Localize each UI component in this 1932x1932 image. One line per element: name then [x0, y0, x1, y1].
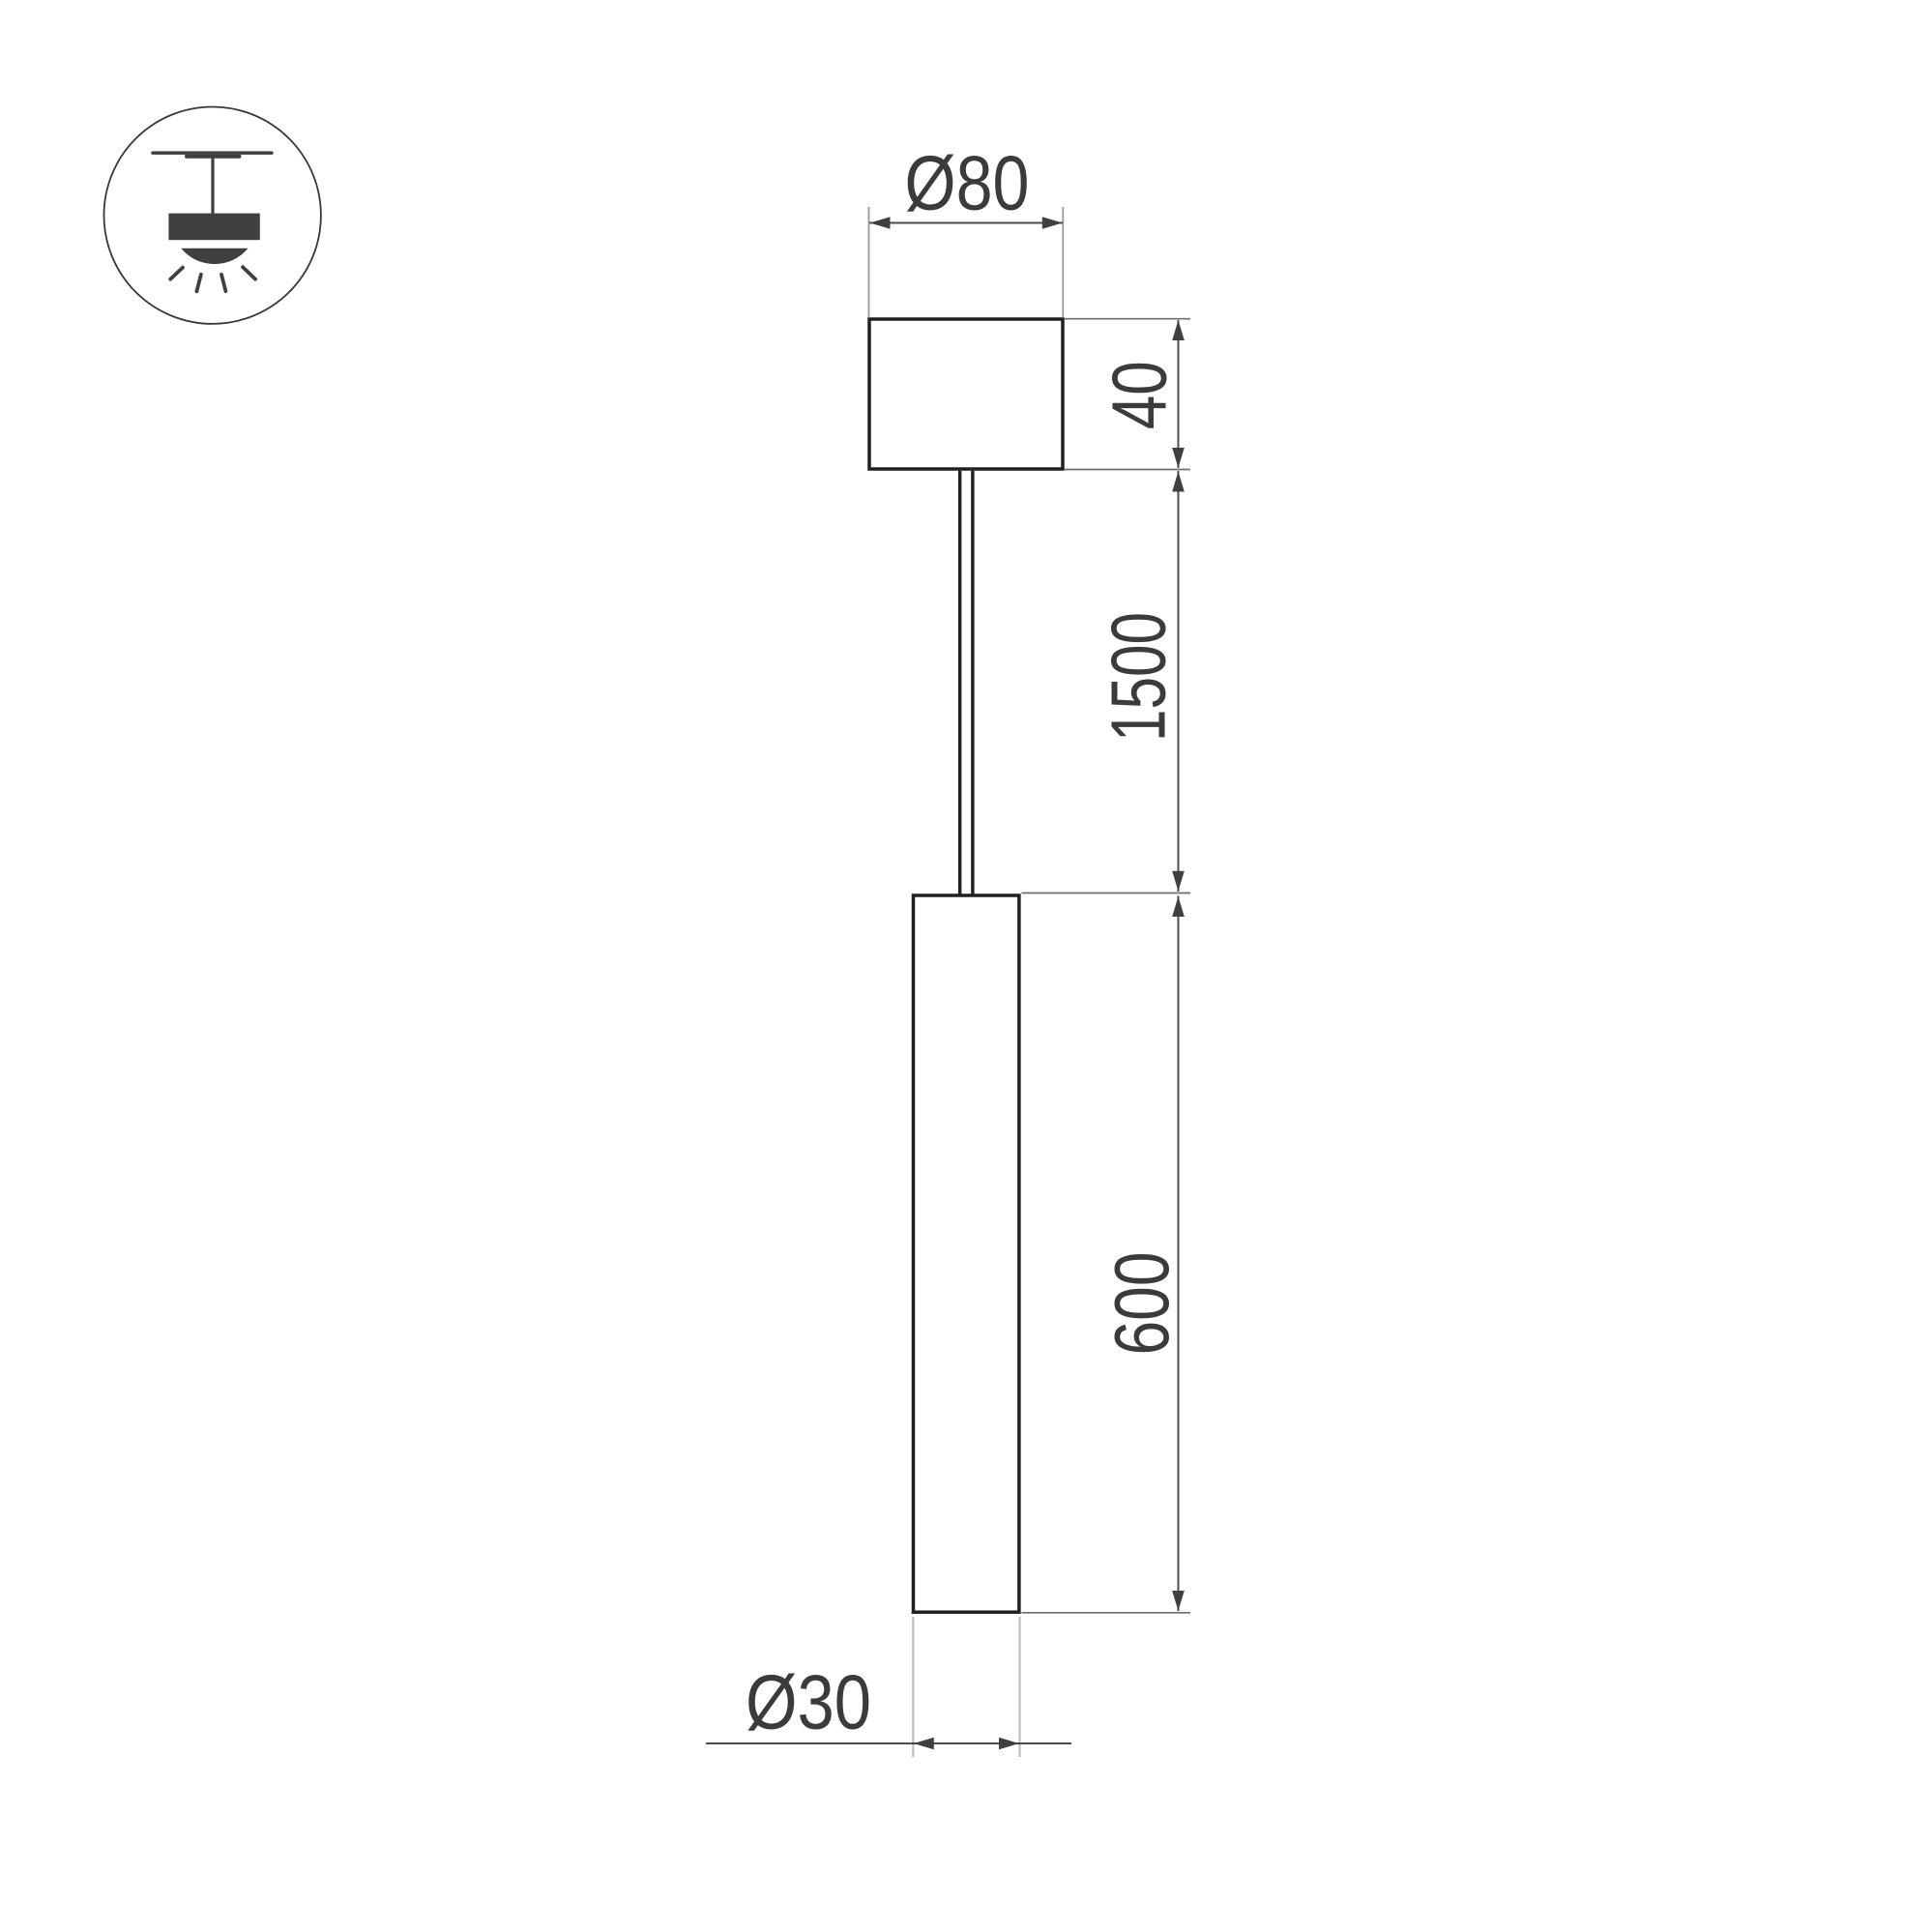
svg-text:40: 40 [1096, 361, 1182, 429]
svg-text:600: 600 [1098, 1252, 1185, 1356]
svg-text:1500: 1500 [1096, 612, 1182, 742]
svg-text:Ø80: Ø80 [905, 139, 1030, 225]
svg-text:Ø30: Ø30 [746, 1658, 871, 1744]
